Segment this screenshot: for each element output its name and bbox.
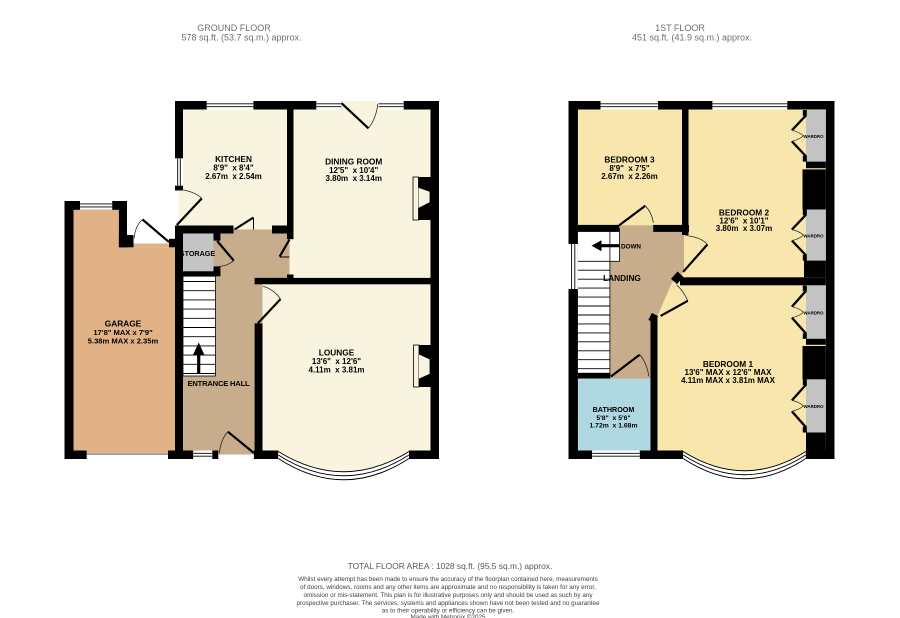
svg-text:WARDRO: WARDRO <box>804 310 825 315</box>
svg-text:WARDRO: WARDRO <box>804 404 825 409</box>
svg-text:5.38m MAX x 2.35m: 5.38m MAX x 2.35m <box>88 336 159 345</box>
svg-text:578 sq.ft. (53.7 sq.m.) approx: 578 sq.ft. (53.7 sq.m.) approx. <box>181 32 301 42</box>
svg-text:2.67m x 2.26m: 2.67m x 2.26m <box>601 172 657 181</box>
svg-text:Made with Metropix ©2025: Made with Metropix ©2025 <box>411 613 486 618</box>
svg-text:1.72m x 1.68m: 1.72m x 1.68m <box>590 423 638 430</box>
svg-text:of doors, windows, rooms and a: of doors, windows, rooms and any other i… <box>300 584 596 591</box>
svg-text:2.67m x 2.54m: 2.67m x 2.54m <box>205 172 261 181</box>
svg-text:3.80m x 3.07m: 3.80m x 3.07m <box>716 224 772 233</box>
svg-text:451 sq.ft. (41.9 sq.m.) approx: 451 sq.ft. (41.9 sq.m.) approx. <box>632 32 752 42</box>
svg-text:WARDRO: WARDRO <box>804 233 825 238</box>
svg-text:omission or mis-statement. Thi: omission or mis-statement. This plan is … <box>304 592 594 599</box>
svg-text:Whilst every attempt has been: Whilst every attempt has been made to en… <box>298 576 598 583</box>
svg-text:4.11m x 3.81m: 4.11m x 3.81m <box>308 366 364 375</box>
svg-text:STORAGE: STORAGE <box>180 249 216 258</box>
svg-text:5'8" x 5'6": 5'8" x 5'6" <box>596 415 630 422</box>
svg-text:TOTAL FLOOR AREA : 1028 sq.ft.: TOTAL FLOOR AREA : 1028 sq.ft. (95.5 sq.… <box>348 561 553 571</box>
svg-text:ENTRANCE HALL: ENTRANCE HALL <box>188 379 251 388</box>
svg-text:BATHROOM: BATHROOM <box>593 405 635 414</box>
svg-text:LANDING: LANDING <box>603 273 641 283</box>
svg-text:WARDRO: WARDRO <box>804 134 825 139</box>
svg-text:DOWN: DOWN <box>621 243 641 250</box>
svg-text:4.11m MAX x 3.81m MAX: 4.11m MAX x 3.81m MAX <box>681 376 775 385</box>
svg-text:prospective purchaser. The ser: prospective purchaser. The services, sys… <box>296 600 600 607</box>
svg-text:3.80m x 3.14m: 3.80m x 3.14m <box>325 174 381 183</box>
